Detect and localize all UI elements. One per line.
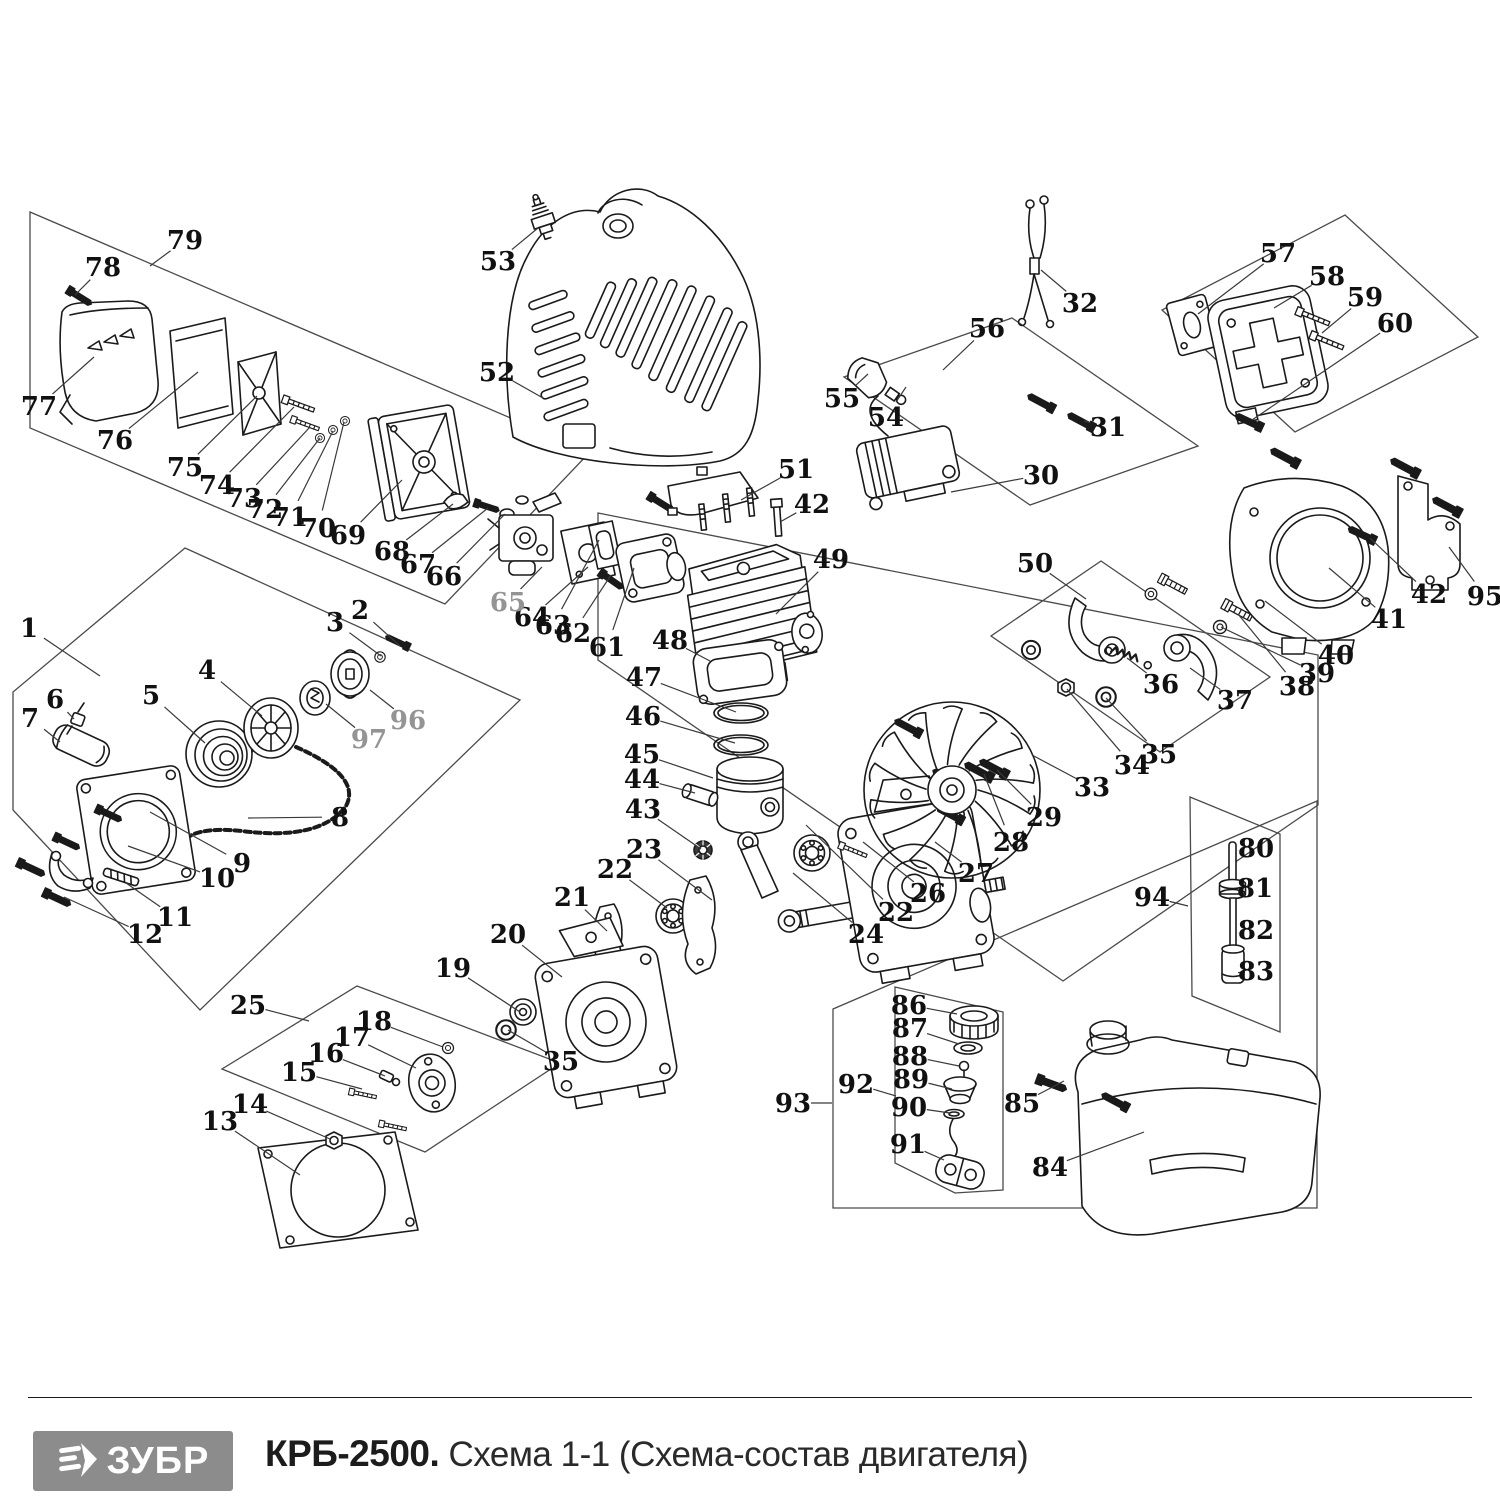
washer-35b [496,1020,516,1040]
screw-15 [348,1088,377,1100]
bearing-right-drawing [794,835,830,871]
exploded-parts-diagram: 1234567891011121314151617181920212222232… [0,0,1500,1500]
part-label-2: 2 [351,596,369,626]
footer: ЗУБР КРБ-2500. Схема 1-1 (Схема-состав д… [0,1397,1500,1500]
part-label-12: 12 [127,920,163,950]
leader-line-8 [248,817,322,818]
fitting-16 [379,1070,400,1086]
air-filter-cover-drawing [60,301,158,424]
part-label-4: 4 [198,656,216,686]
part-label-20: 20 [490,920,526,950]
washer-18 [442,1042,453,1053]
part-label-55: 55 [824,384,860,414]
part-label-27: 27 [958,859,994,889]
part-label-46: 46 [625,702,661,732]
screw-73 [290,416,320,433]
part-label-53: 53 [480,247,516,277]
leader-line-45 [659,760,713,778]
washer-clutch [1145,588,1157,600]
diagram-title: КРБ-2500. Схема 1-1 (Схема-состав двигат… [265,1433,1028,1475]
ratchet-drum-drawing [300,681,330,715]
washer-3 [375,652,385,662]
part-label-80: 80 [1238,834,1274,864]
part-label-82: 82 [1238,916,1274,946]
part-label-9: 9 [233,849,251,879]
part-label-6: 6 [46,685,64,715]
leader-line-5 [164,707,205,743]
switch-wires-drawing [1019,196,1054,328]
cover-plate-drawing [668,467,758,515]
leader-line-18 [391,1027,443,1047]
part-label-32: 32 [1062,289,1098,319]
bolt-clutch [1157,573,1188,596]
leader-line-19 [468,978,520,1012]
part-label-95: 95 [1467,582,1500,612]
nut-14 [326,1132,342,1149]
leader-line-12 [64,897,129,927]
part-label-97: 97 [351,725,387,755]
part-label-35: 35 [543,1047,579,1077]
part-label-85: 85 [1004,1089,1040,1119]
part-label-10: 10 [199,864,235,894]
part-label-42: 42 [794,490,830,520]
part-label-40: 40 [1318,641,1354,671]
fan-cover-drawing [1230,478,1389,654]
leader-line-25 [265,1010,309,1021]
screw-housing-1 [52,832,81,852]
part-label-24: 24 [848,920,884,950]
washer-70 [340,416,349,425]
part-label-91: 91 [890,1130,926,1160]
part-label-37: 37 [1217,686,1253,716]
part-label-26: 26 [910,879,946,909]
part-label-94: 94 [1134,883,1170,913]
part-label-81: 81 [1237,874,1273,904]
starter-grip-drawing [49,722,113,770]
leader-line-15 [316,1077,362,1089]
part-label-7: 7 [21,704,39,734]
brand-name: ЗУБР [107,1442,210,1480]
part-label-52: 52 [479,358,515,388]
starter-pulley-drawing [331,650,369,698]
part-label-35: 35 [1141,740,1177,770]
part-label-14: 14 [232,1090,268,1120]
screw-31a [1026,391,1057,413]
fuel-tank-drawing [1075,1021,1320,1235]
scheme-subtitle: Схема 1-1 (Схема-состав двигателя) [439,1435,1028,1474]
part-label-56: 56 [969,314,1005,344]
base-plate-drawing [258,1132,418,1248]
screw-15b [378,1120,407,1132]
part-label-74: 74 [199,471,235,501]
part-label-43: 43 [625,795,661,825]
leader-line-28 [984,774,1004,825]
part-label-19: 19 [435,954,471,984]
part-label-8: 8 [331,803,349,833]
part-label-93: 93 [775,1089,811,1119]
part-label-68: 68 [374,537,410,567]
part-label-75: 75 [167,453,203,483]
washer-39 [1214,621,1227,634]
zubr-logo-icon [57,1441,101,1481]
leader-line-17 [368,1045,416,1068]
piston-rings-drawing [714,703,768,755]
piston-drawing [717,757,783,834]
part-label-76: 76 [97,426,133,456]
filter-element-drawing [170,318,233,428]
part-label-30: 30 [1023,461,1059,491]
part-label-49: 49 [813,545,849,575]
leader-line-4 [221,682,262,716]
part-label-84: 84 [1032,1153,1068,1183]
leader-line-43 [658,819,701,849]
screw-42b [1389,455,1421,479]
cylinder-gasket-drawing [692,638,790,706]
leader-line-16 [343,1060,385,1076]
part-label-47: 47 [626,663,662,693]
leader-line-1 [44,638,100,676]
screw-42a [1269,445,1301,469]
model-number: КРБ-2500. [265,1433,439,1474]
part-label-51: 51 [778,455,814,485]
part-label-61: 61 [589,633,625,663]
part-label-31: 31 [1090,413,1126,443]
carburetor-drawing [488,493,561,575]
leader-line-91 [924,1151,944,1160]
leader-line-2 [373,622,400,646]
part-label-45: 45 [624,740,660,770]
leader-line-67 [432,508,488,553]
part-label-87: 87 [892,1014,928,1044]
leader-line-46 [660,721,735,743]
ignition-coil-drawing [855,425,963,511]
primer-body-drawing [404,1050,459,1115]
part-label-50: 50 [1017,549,1053,579]
part-label-41: 41 [1371,605,1407,635]
part-label-33: 33 [1074,773,1110,803]
part-label-96: 96 [390,706,426,736]
leader-line-66 [457,514,505,563]
part-label-1: 1 [20,614,38,644]
wrist-pin-drawing [681,783,720,807]
leader-line-50 [1050,573,1086,599]
part-label-92: 92 [838,1070,874,1100]
part-label-48: 48 [652,626,688,656]
leader-line-30 [951,478,1023,492]
part-label-90: 90 [891,1093,927,1123]
crankcase-left-drawing [527,911,681,1112]
diagram-canvas: 1234567891011121314151617181920212222232… [0,0,1500,1397]
part-label-77: 77 [21,392,57,422]
leader-line-73 [256,427,310,485]
leader-line-35 [508,1030,545,1052]
part-label-42: 42 [1411,580,1447,610]
part-label-83: 83 [1238,957,1274,987]
part-label-54: 54 [868,403,904,433]
part-label-58: 58 [1309,262,1345,292]
part-label-5: 5 [142,681,160,711]
washer-71 [328,425,337,434]
screw-74 [281,395,315,414]
starter-housing-drawing [76,765,197,896]
part-label-21: 21 [554,883,590,913]
part-label-25: 25 [230,991,266,1021]
part-label-23: 23 [626,835,662,865]
part-label-29: 29 [1026,803,1062,833]
filter-plate-drawing [238,352,281,435]
part-label-60: 60 [1377,309,1413,339]
fuel-cap-assembly-drawing [933,1006,998,1192]
muffler-drawing [1205,282,1333,425]
needle-bearing-drawing [694,841,712,859]
screw-12a [16,858,47,879]
part-label-78: 78 [85,253,121,283]
part-label-28: 28 [993,828,1029,858]
leader-line-14 [266,1111,330,1139]
part-label-65: 65 [490,588,526,618]
part-label-3: 3 [326,608,344,638]
leader-line-56 [943,340,974,370]
leader-line-88 [928,1060,959,1066]
leader-line-72 [276,438,320,495]
part-label-79: 79 [167,226,203,256]
zubr-logo: ЗУБР [33,1431,233,1491]
part-label-57: 57 [1260,239,1296,269]
part-label-89: 89 [893,1065,929,1095]
footer-divider [28,1397,1472,1398]
leader-line-70 [322,422,344,511]
screw-42c [1431,494,1463,518]
part-label-18: 18 [356,1007,392,1037]
bearing-19 [510,999,536,1025]
part-label-36: 36 [1143,670,1179,700]
leader-line-22 [629,880,667,908]
